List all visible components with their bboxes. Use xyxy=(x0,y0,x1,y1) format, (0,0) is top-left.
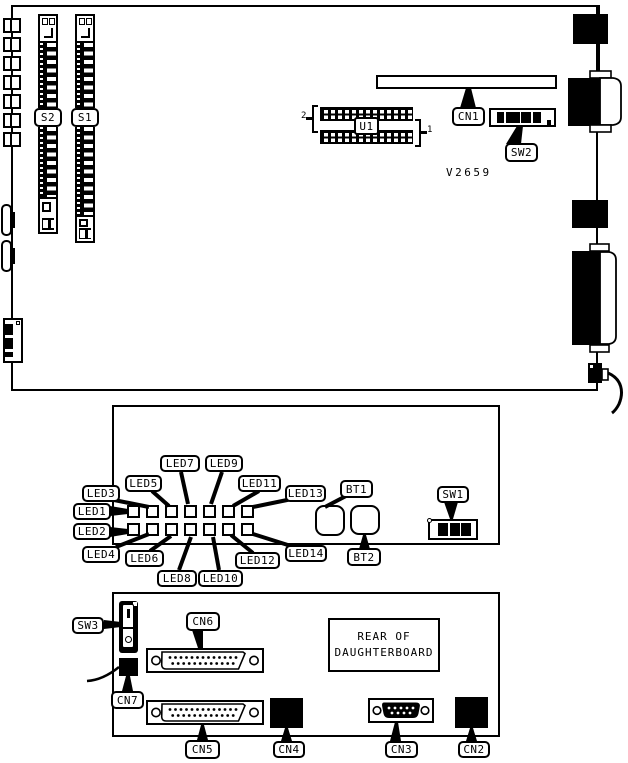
s2-connector-bottom xyxy=(38,197,58,234)
s2-connector-body xyxy=(38,127,58,197)
led8-label: LED8 xyxy=(157,570,197,587)
key-square xyxy=(42,18,48,25)
battery-bt2 xyxy=(350,505,380,535)
edge-pin xyxy=(3,37,21,52)
key-square xyxy=(79,18,85,25)
switch-slot xyxy=(122,604,134,648)
daughterboard-title-box: REAR OF DAUGHTERBOARD xyxy=(328,618,440,672)
cn5-db25-connector xyxy=(146,700,264,725)
switch-segment xyxy=(521,112,531,123)
title-line2: DAUGHTERBOARD xyxy=(334,645,433,661)
battery-bt1 xyxy=(315,505,345,536)
s2-connector-top xyxy=(38,14,58,43)
cn4-connector xyxy=(270,698,303,728)
u1-label: U1 xyxy=(354,117,379,135)
pin1-dot xyxy=(427,518,432,523)
led10-label: LED10 xyxy=(198,570,243,587)
led5-square xyxy=(165,505,178,518)
pin-strip xyxy=(47,43,56,108)
led8-square xyxy=(184,523,197,536)
s1-connector-bottom xyxy=(75,215,95,243)
part-number: V2659 xyxy=(446,166,492,179)
sw2-label: SW2 xyxy=(505,143,538,162)
pin2-bracket xyxy=(312,105,318,133)
pin2-tick xyxy=(306,117,312,120)
key-square xyxy=(86,18,92,25)
off-mark xyxy=(125,636,132,643)
key-notch xyxy=(79,219,88,227)
edge-tab xyxy=(1,240,12,272)
contact xyxy=(51,220,56,228)
switch-segment xyxy=(506,112,520,123)
led12-square xyxy=(222,523,235,536)
key-notch xyxy=(81,28,90,38)
led13-square xyxy=(241,505,254,518)
db25-face xyxy=(148,650,262,671)
sw3-label: SW3 xyxy=(72,617,104,634)
switch-segment xyxy=(533,112,541,123)
cn7-label: CN7 xyxy=(111,691,144,709)
led11-square xyxy=(222,505,235,518)
sw3-slide-switch xyxy=(119,601,138,653)
db25-face xyxy=(148,702,262,723)
led7-square xyxy=(184,505,197,518)
led2-label: LED2 xyxy=(73,523,111,540)
s1-connector-top xyxy=(75,14,95,43)
title-line1: REAR OF xyxy=(357,629,410,645)
contact-stripes xyxy=(5,324,13,357)
on-mark xyxy=(127,609,130,618)
led11-label: LED11 xyxy=(238,475,281,492)
led10-square xyxy=(203,523,216,536)
cn1-label: CN1 xyxy=(452,107,485,126)
bottom-contacts xyxy=(42,218,54,230)
pin-strip xyxy=(84,43,93,108)
contact xyxy=(43,220,48,228)
led14-label: LED14 xyxy=(285,545,327,562)
bottom-contacts xyxy=(79,228,91,239)
pin1-marker: 1 xyxy=(427,125,432,135)
s1-connector-body xyxy=(75,43,95,108)
pin-dots xyxy=(77,127,80,215)
pin2-marker: 2 xyxy=(301,111,306,121)
sw1-dip-switch xyxy=(428,519,478,540)
led4-square xyxy=(146,523,159,536)
switch-segment xyxy=(438,523,448,536)
sw2-dip-switch xyxy=(489,108,556,127)
cn3-db9-connector xyxy=(368,698,434,723)
contact xyxy=(88,230,93,238)
led2-square xyxy=(127,523,140,536)
led1-label: LED1 xyxy=(73,503,111,520)
main-board-outline xyxy=(11,5,598,391)
contact xyxy=(80,230,85,238)
key-notch xyxy=(42,202,51,212)
led3-square xyxy=(146,505,159,518)
bt2-label: BT2 xyxy=(347,548,381,566)
cn5-label: CN5 xyxy=(185,740,220,759)
cn2-connector xyxy=(455,697,488,728)
pin-dots xyxy=(77,43,80,108)
led1-square xyxy=(127,505,140,518)
s2-connector-body xyxy=(38,43,58,108)
switch-segment xyxy=(450,523,460,536)
pin1-notch xyxy=(16,321,20,325)
s1-label: S1 xyxy=(71,108,99,127)
led14-square xyxy=(241,523,254,536)
s2-label: S2 xyxy=(34,108,62,127)
cn6-label: CN6 xyxy=(186,612,220,631)
switch-segment xyxy=(461,523,471,536)
pin-strip xyxy=(47,127,56,197)
edge-pin xyxy=(3,75,21,90)
s1-connector-body xyxy=(75,127,95,215)
pin-dots xyxy=(40,127,43,197)
led9-square xyxy=(203,505,216,518)
switch-notch xyxy=(547,120,551,125)
led4-label: LED4 xyxy=(82,546,120,563)
cn6-db25-connector xyxy=(146,648,264,673)
switch-segment xyxy=(497,112,504,123)
led5-label: LED5 xyxy=(125,475,162,492)
cn1-connector xyxy=(376,75,557,89)
edge-tab xyxy=(1,204,12,236)
pin-strip xyxy=(84,127,93,215)
led9-label: LED9 xyxy=(205,455,243,472)
edge-pin xyxy=(3,18,21,33)
led12-label: LED12 xyxy=(235,552,280,569)
circuit-board-diagram: S2 S1 U1 2 1 CN1 xyxy=(0,0,628,763)
led6-square xyxy=(165,523,178,536)
pin1-tick xyxy=(421,131,427,134)
pin-dots xyxy=(40,43,43,108)
key-square xyxy=(49,18,55,25)
db9-face xyxy=(370,700,432,721)
edge-pin xyxy=(3,56,21,71)
led3-label: LED3 xyxy=(82,485,120,502)
edge-pin xyxy=(3,132,21,147)
edge-connector-component xyxy=(3,318,23,363)
led7-label: LED7 xyxy=(160,455,200,472)
edge-pin xyxy=(3,94,21,109)
sw1-label: SW1 xyxy=(437,486,469,503)
slot-divider xyxy=(123,627,133,629)
cn3-label: CN3 xyxy=(385,741,418,758)
led13-label: LED13 xyxy=(285,485,326,502)
led6-label: LED6 xyxy=(125,550,164,567)
key-notch xyxy=(44,28,53,38)
cn4-label: CN4 xyxy=(273,741,305,758)
cn2-label: CN2 xyxy=(458,741,490,758)
cn7-connector xyxy=(119,658,138,676)
edge-pin xyxy=(3,113,21,128)
bt1-label: BT1 xyxy=(340,480,373,498)
